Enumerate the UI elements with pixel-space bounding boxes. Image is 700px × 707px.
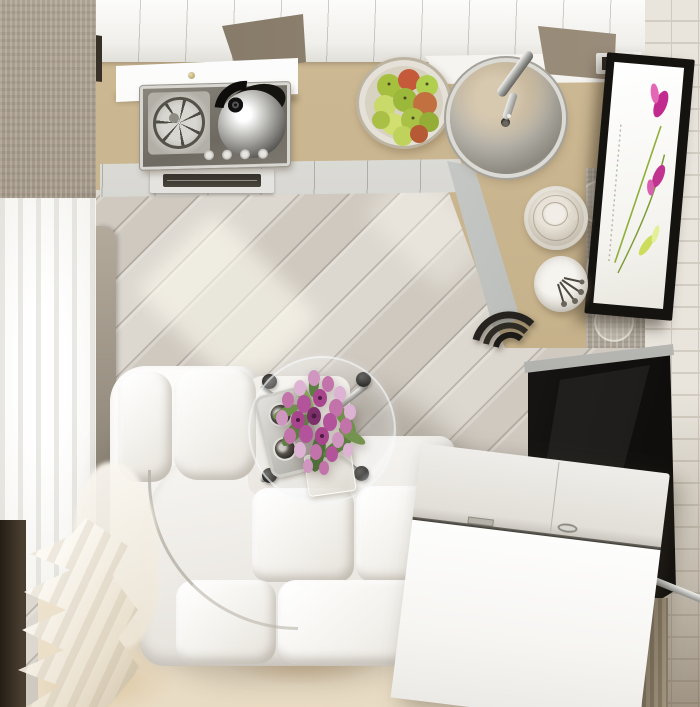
storage-chest [391, 443, 670, 707]
round-sink [450, 62, 562, 174]
plate-stack [524, 186, 588, 250]
shelf-knob [188, 72, 195, 79]
gas-burner [148, 91, 210, 155]
fruit-basket [356, 57, 452, 149]
sofa-cushion [174, 368, 256, 480]
tulip-bouquet [256, 360, 384, 484]
stove-knob [258, 149, 268, 159]
burner-grate-icon [153, 96, 205, 149]
base-cabinet-vent [150, 169, 274, 193]
cup [542, 202, 568, 226]
cup-handle [568, 212, 577, 221]
chest-front [391, 520, 661, 707]
stove-knob [204, 150, 214, 160]
water-drip [507, 114, 511, 118]
apples-icon [359, 60, 455, 152]
artwork-canvas [593, 62, 684, 309]
flower-art-icon [593, 62, 684, 309]
window-sill [0, 520, 26, 707]
stool-arcs-icon [466, 294, 544, 354]
vent-slot [163, 174, 261, 187]
stove-knob [222, 150, 232, 160]
bar-stool [466, 294, 544, 354]
stove-cooktop [140, 82, 290, 170]
apartment-top-view [0, 0, 700, 707]
